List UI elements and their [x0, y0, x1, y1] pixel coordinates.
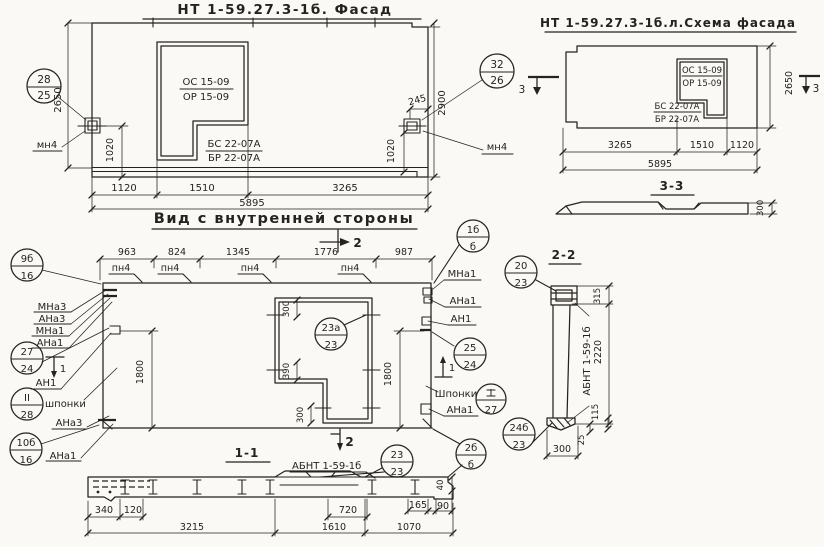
section-1-label-left: 1	[60, 364, 66, 375]
callout-25-top: 25	[464, 343, 477, 354]
drawing-sheet: НТ 1-59.27.3-1б. Фасад ОС 15-09 ОР 15-09…	[0, 0, 824, 547]
label-ana1-right-2: АНа1	[447, 405, 474, 416]
facade-window-mark-line1: ОС 15-09	[182, 77, 229, 88]
rebar-dot-2	[109, 491, 112, 494]
dim-90: 90	[437, 501, 449, 512]
callout-2b-top: 2б	[465, 443, 478, 454]
inner-window-dim-ticks	[294, 297, 314, 426]
callout-23a-bottom: 23	[325, 340, 338, 351]
section-1-1-sill-details	[275, 471, 361, 485]
dim-1776: 1776	[314, 247, 338, 258]
facade-elevation: НТ 1-59.27.3-1б. Фасад ОС 15-09 ОР 15-09…	[27, 2, 514, 212]
scheme-title: НТ 1-59.27.3-1б.л.Схема фасада	[540, 16, 796, 30]
dim-165: 165	[409, 500, 427, 511]
callout-28-25-top: 28	[37, 74, 50, 86]
callout-20-divider-leader	[506, 273, 556, 291]
label-pn4-4: пн4	[341, 263, 359, 274]
callout-23-bottom: 23	[391, 467, 404, 478]
label-mna1-right: МНа1	[448, 269, 477, 280]
dim-245: 245	[407, 93, 427, 108]
callout-28-25-bottom: 25	[37, 90, 50, 102]
section-3-3-title: 3-3	[660, 179, 685, 193]
facade-scheme: НТ 1-59.27.3-1б.л.Схема фасада ОС 15-09 …	[519, 16, 820, 217]
facade-panel-details	[92, 18, 428, 177]
anchor-plate-details	[78, 118, 426, 133]
dim-120: 120	[124, 505, 142, 516]
inner-panel-edge-anchors	[98, 290, 431, 420]
callout-I-top: I	[490, 388, 493, 399]
label-pn4-3: пн4	[241, 263, 259, 274]
scheme-window-mark-line1: ОС 15-09	[682, 66, 722, 76]
section-2-label-top: 2	[353, 236, 362, 250]
dim-987: 987	[395, 247, 413, 258]
callout-32-26-top: 32	[490, 59, 503, 71]
section-2-label-bottom: 2	[345, 435, 354, 449]
callout-32-26-bottom: 26	[490, 75, 504, 87]
callout-1b-bottom: б	[470, 242, 476, 253]
scheme-dim-2650: 2650	[784, 71, 795, 95]
label-pn4-1: пн4	[112, 263, 130, 274]
section-1-1-rebar-dashed	[93, 481, 150, 487]
dim-824: 824	[168, 247, 186, 258]
section-1-1-rebar-symbols	[121, 480, 419, 494]
section-2-marker-top-arrow	[340, 238, 350, 246]
label-keys-right: Шпонки	[435, 389, 477, 400]
section-3-3-profile	[556, 202, 748, 214]
section-3-marker-arrows	[533, 86, 810, 95]
label-an1-right: АН1	[451, 314, 472, 325]
dim-2650: 2650	[53, 87, 64, 112]
callout-23a-top: 23а	[322, 323, 341, 334]
part-label-abnt-22: АБНТ 1-59-1б	[582, 326, 593, 395]
dim-2220: 2220	[593, 340, 604, 364]
label-keys-left: шпонки	[45, 399, 86, 410]
win-dim-390: 390	[282, 363, 292, 379]
dim-1020-right: 1020	[386, 139, 397, 163]
callout-9b-top: 9б	[21, 254, 34, 265]
callout-23-top: 23	[391, 450, 404, 461]
dim-1020-left: 1020	[105, 138, 116, 162]
win-dim-300-top: 300	[282, 301, 292, 317]
scheme-dim-1510: 1510	[690, 140, 714, 151]
section-3-3-profile-details	[566, 202, 699, 214]
label-ana1-right: АНа1	[450, 296, 477, 307]
section-2-2-dim-lines	[547, 286, 613, 459]
anchor-label-mn4-right: мн4	[487, 142, 507, 153]
label-an1-left: АН1	[36, 378, 57, 389]
section-3-marker-lines	[537, 76, 806, 90]
section-1-marker-left-arrow	[51, 371, 57, 378]
dim-25: 25	[577, 435, 587, 446]
section-1-1-title: 1-1	[235, 446, 260, 460]
dim-2900: 2900	[437, 90, 448, 115]
pn4-leader-lines	[109, 274, 371, 282]
facade-leader-lines	[57, 80, 483, 150]
dim-1345: 1345	[226, 247, 250, 258]
facade-door-mark-line1: БС 22-07А	[208, 139, 261, 150]
section-2-2-title: 2-2	[552, 248, 577, 262]
label-mna1: МНа1	[36, 326, 65, 337]
section-1-1: 1-1 2 АБНТ 1-59-1б 23 23 2б б 40 340 120…	[85, 429, 486, 536]
callout-25-bottom: 24	[464, 360, 477, 371]
callout-keys-top: II	[24, 393, 30, 404]
dim-340: 340	[95, 505, 113, 516]
label-ana1-bottom: АНа1	[50, 451, 77, 462]
callout-1b-top: 1б	[467, 225, 480, 236]
section-3-label-left: 3	[519, 84, 526, 96]
dim-1510: 1510	[189, 183, 214, 194]
callout-9b-bottom: 16	[21, 271, 34, 282]
section-2-2-body	[553, 305, 570, 418]
scheme-dim-1120: 1120	[730, 140, 754, 151]
dim-40: 40	[436, 480, 446, 491]
dim-720: 720	[339, 505, 357, 516]
dim-300-22: 300	[553, 444, 571, 455]
callout-keys-bottom: 28	[21, 410, 34, 421]
callout-24b-bottom: 23	[513, 440, 526, 451]
dim-1800-right: 1800	[383, 362, 394, 386]
label-mna3: МНа3	[38, 302, 67, 313]
inner-1800-dim-lines	[120, 331, 424, 428]
section-3-label-right: 3	[813, 83, 820, 95]
inner-title: Вид с внутренней стороны	[154, 211, 414, 227]
dim-1120: 1120	[111, 183, 136, 194]
facade-title: НТ 1-59.27.3-1б. Фасад	[177, 2, 392, 18]
part-label-abnt-11: АБНТ 1-59-1б	[292, 461, 361, 472]
label-ana3: АНа3	[39, 314, 66, 325]
facade-window-mark-line2: ОР 15-09	[183, 92, 229, 103]
scheme-window-mark-line2: ОР 15-09	[682, 79, 721, 89]
section-2-2-top-anchor	[551, 286, 577, 305]
scheme-dim-5895: 5895	[648, 159, 672, 170]
dim-3265: 3265	[332, 183, 357, 194]
inner-1800-dim-ticks	[149, 328, 403, 431]
label-ana3-bottom: АНа3	[56, 418, 83, 429]
panel-working-drawing: НТ 1-59.27.3-1б. Фасад ОС 15-09 ОР 15-09…	[0, 0, 824, 547]
section-2-marker-bottom-arrow	[337, 443, 343, 451]
anchor-label-mn4-left: мн4	[37, 140, 57, 151]
section-3-3-dim-300: 300	[756, 200, 766, 216]
facade-panel-outline	[92, 23, 428, 177]
inner-window-dim-lines	[297, 300, 311, 423]
dim-1800-left: 1800	[135, 360, 146, 384]
section-1-label-right: 1	[449, 363, 455, 374]
callout-20-bottom: 23	[515, 278, 528, 289]
callout-20-top: 20	[515, 261, 528, 272]
label-pn4-2: пн4	[161, 263, 179, 274]
callout-10b-top: 10б	[17, 438, 36, 449]
scheme-dim-3265: 3265	[608, 140, 632, 151]
rebar-dot-1	[97, 491, 100, 494]
win-dim-300-bottom: 300	[296, 407, 306, 423]
dim-5895: 5895	[239, 198, 264, 209]
section-2-2: 2-2 20 23 315 2220 115 25 300 АБНТ 1-59-…	[503, 248, 613, 459]
callout-27-top: 27	[21, 347, 34, 358]
callout-10b-bottom: 16	[20, 455, 33, 466]
dim-1610: 1610	[322, 522, 346, 533]
dim-1070: 1070	[397, 522, 421, 533]
dim-115: 115	[591, 404, 601, 420]
scheme-door-mark-line1: БС 22-07А	[655, 102, 700, 112]
inner-view: Вид с внутренней стороны 963 824 1345 17…	[10, 211, 506, 466]
section-3-marker-bars	[528, 76, 820, 77]
callout-24b-top: 24б	[510, 423, 529, 434]
dim-963: 963	[118, 247, 136, 258]
dim-3215: 3215	[180, 522, 204, 533]
callout-27-bottom: 24	[21, 364, 34, 375]
section-1-marker-right-arrow	[440, 356, 446, 363]
facade-door-mark-line2: БР 22-07А	[208, 153, 260, 164]
callout-2b-bottom: б	[468, 460, 474, 471]
callout-I-bottom: 27	[485, 405, 498, 416]
label-ana1: АНа1	[37, 338, 64, 349]
dim-315: 315	[593, 288, 603, 304]
left-leader-lines	[41, 270, 117, 458]
